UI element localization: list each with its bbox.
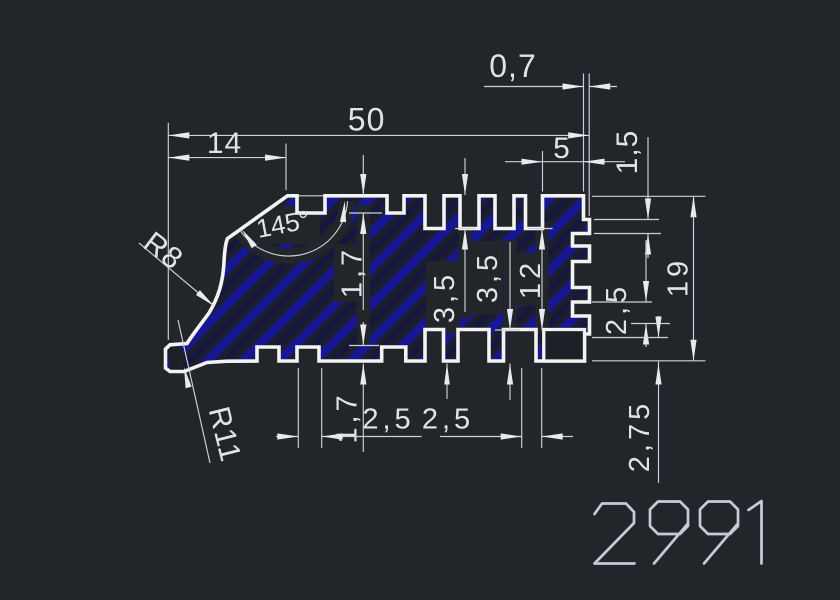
svg-text:2,5: 2,5 <box>601 283 633 335</box>
svg-text:2,5: 2,5 <box>422 404 474 436</box>
svg-text:50: 50 <box>348 102 386 138</box>
svg-text:14: 14 <box>207 127 242 160</box>
svg-text:2,75: 2,75 <box>624 400 656 472</box>
svg-text:3,5: 3,5 <box>472 251 504 303</box>
svg-text:3,5: 3,5 <box>429 271 461 323</box>
svg-text:1,7: 1,7 <box>337 246 369 298</box>
svg-text:2,5: 2,5 <box>362 404 414 436</box>
svg-text:1,5: 1,5 <box>611 130 644 175</box>
svg-text:5: 5 <box>553 132 571 165</box>
svg-text:0,7: 0,7 <box>489 48 536 84</box>
svg-text:12: 12 <box>515 259 547 299</box>
svg-text:19: 19 <box>663 257 695 297</box>
